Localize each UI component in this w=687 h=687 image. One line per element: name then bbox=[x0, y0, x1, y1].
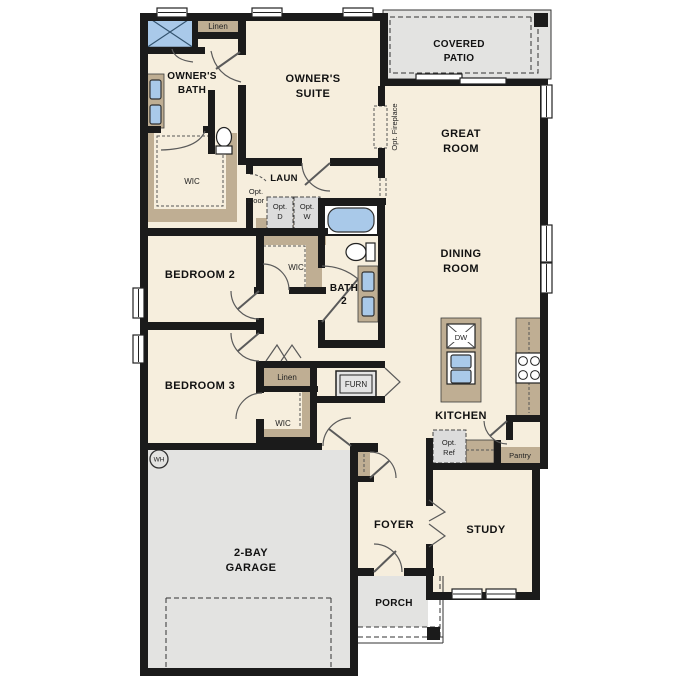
opt-washer-label-2: W bbox=[303, 212, 311, 221]
window-right-1 bbox=[541, 85, 552, 118]
owners-sink-1 bbox=[150, 80, 161, 99]
opt-washer-label: Opt. bbox=[300, 202, 314, 211]
window-top-1 bbox=[157, 8, 187, 17]
covered-patio-label: COVERED bbox=[433, 39, 485, 50]
study-label: STUDY bbox=[466, 524, 506, 536]
bath2-sink-1 bbox=[362, 272, 374, 291]
linen-hall-label: Linen bbox=[277, 373, 297, 382]
opt-ref-label: Opt. bbox=[442, 438, 456, 447]
garage-label-2: GARAGE bbox=[226, 562, 277, 574]
linen-owners-label: Linen bbox=[208, 22, 228, 31]
dining-room-label-2: ROOM bbox=[443, 263, 479, 275]
bath2-sink-2 bbox=[362, 297, 374, 316]
window-top-2 bbox=[252, 8, 282, 17]
wic-bed3-shelf bbox=[264, 429, 310, 437]
window-study-1 bbox=[452, 589, 482, 599]
pantry-label: Pantry bbox=[509, 451, 531, 460]
owners-bath-label-2: BATH bbox=[178, 85, 206, 96]
owners-suite-label-2: SUITE bbox=[296, 88, 330, 100]
foyer-label: FOYER bbox=[374, 519, 414, 531]
floor-plan: OWNER'S SUITE OWNER'S BATH COVERED PATIO… bbox=[0, 0, 687, 687]
floor-areas bbox=[140, 10, 551, 668]
wic-bed3-label: WIC bbox=[275, 419, 291, 428]
bedroom2-label: BEDROOM 2 bbox=[165, 269, 235, 281]
laundry-label: LAUN bbox=[270, 173, 298, 184]
owners-bath-label: OWNER'S bbox=[167, 71, 217, 82]
garage-label: 2-BAY bbox=[234, 547, 268, 559]
dining-room-label: DINING bbox=[441, 248, 482, 260]
water-heater-label: WH bbox=[154, 457, 165, 464]
wic-bed3-band bbox=[302, 392, 310, 429]
bath2-tub bbox=[324, 205, 378, 235]
window-left-1 bbox=[133, 288, 144, 318]
opt-door-label: Opt. bbox=[249, 187, 263, 196]
great-room-label: GREAT bbox=[441, 128, 481, 140]
porch-post bbox=[427, 627, 440, 640]
opt-dryer-label-2: D bbox=[277, 212, 283, 221]
opt-dryer-label: Opt. bbox=[273, 202, 287, 211]
bath2-label: BATH bbox=[330, 283, 358, 294]
wic-bed2-label: WIC bbox=[288, 263, 304, 272]
opt-fireplace-label: Opt. Fireplace bbox=[390, 103, 399, 150]
kitchen-counter-lower bbox=[466, 440, 494, 463]
window-study-2 bbox=[486, 589, 516, 599]
dishwasher-label: DW bbox=[455, 333, 468, 342]
covered-patio-label-2: PATIO bbox=[444, 53, 475, 64]
stove bbox=[516, 353, 542, 383]
owners-suite-label: OWNER'S bbox=[286, 73, 341, 85]
great-room-label-2: ROOM bbox=[443, 143, 479, 155]
patio-post bbox=[534, 13, 548, 27]
opt-ref-label-2: Ref bbox=[443, 448, 456, 457]
window-top-3 bbox=[343, 8, 373, 17]
owners-toilet bbox=[216, 128, 232, 155]
bath2-toilet bbox=[346, 243, 375, 261]
porch-label: PORCH bbox=[375, 598, 413, 609]
garage-slab bbox=[148, 450, 350, 668]
wic-owners-label: WIC bbox=[184, 177, 200, 186]
bath2-label-2: 2 bbox=[341, 296, 347, 307]
furnace-label: FURN bbox=[345, 380, 367, 389]
kitchen-sink bbox=[447, 352, 475, 384]
owners-sink-2 bbox=[150, 105, 161, 124]
floor-plan-page: OWNER'S SUITE OWNER'S BATH COVERED PATIO… bbox=[0, 0, 687, 687]
bedroom3-label: BEDROOM 3 bbox=[165, 380, 235, 392]
window-right-3 bbox=[541, 263, 552, 293]
kitchen-label: KITCHEN bbox=[435, 410, 487, 422]
opt-door-label-2: Door bbox=[248, 196, 265, 205]
window-right-2 bbox=[541, 225, 552, 262]
window-left-2 bbox=[133, 335, 144, 363]
